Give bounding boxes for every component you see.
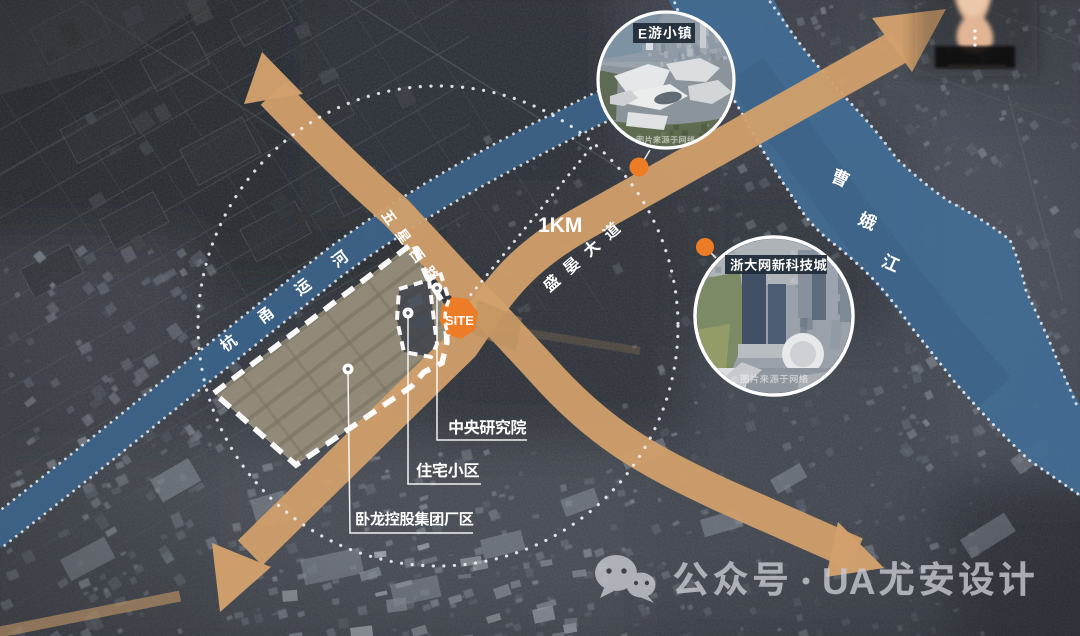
svg-text:E: E [638,27,647,42]
svg-text:UA: UA [822,561,875,602]
svg-text:SITE: SITE [445,313,474,328]
svg-text:1KM: 1KM [538,214,582,237]
svg-text:©: © [731,375,738,386]
